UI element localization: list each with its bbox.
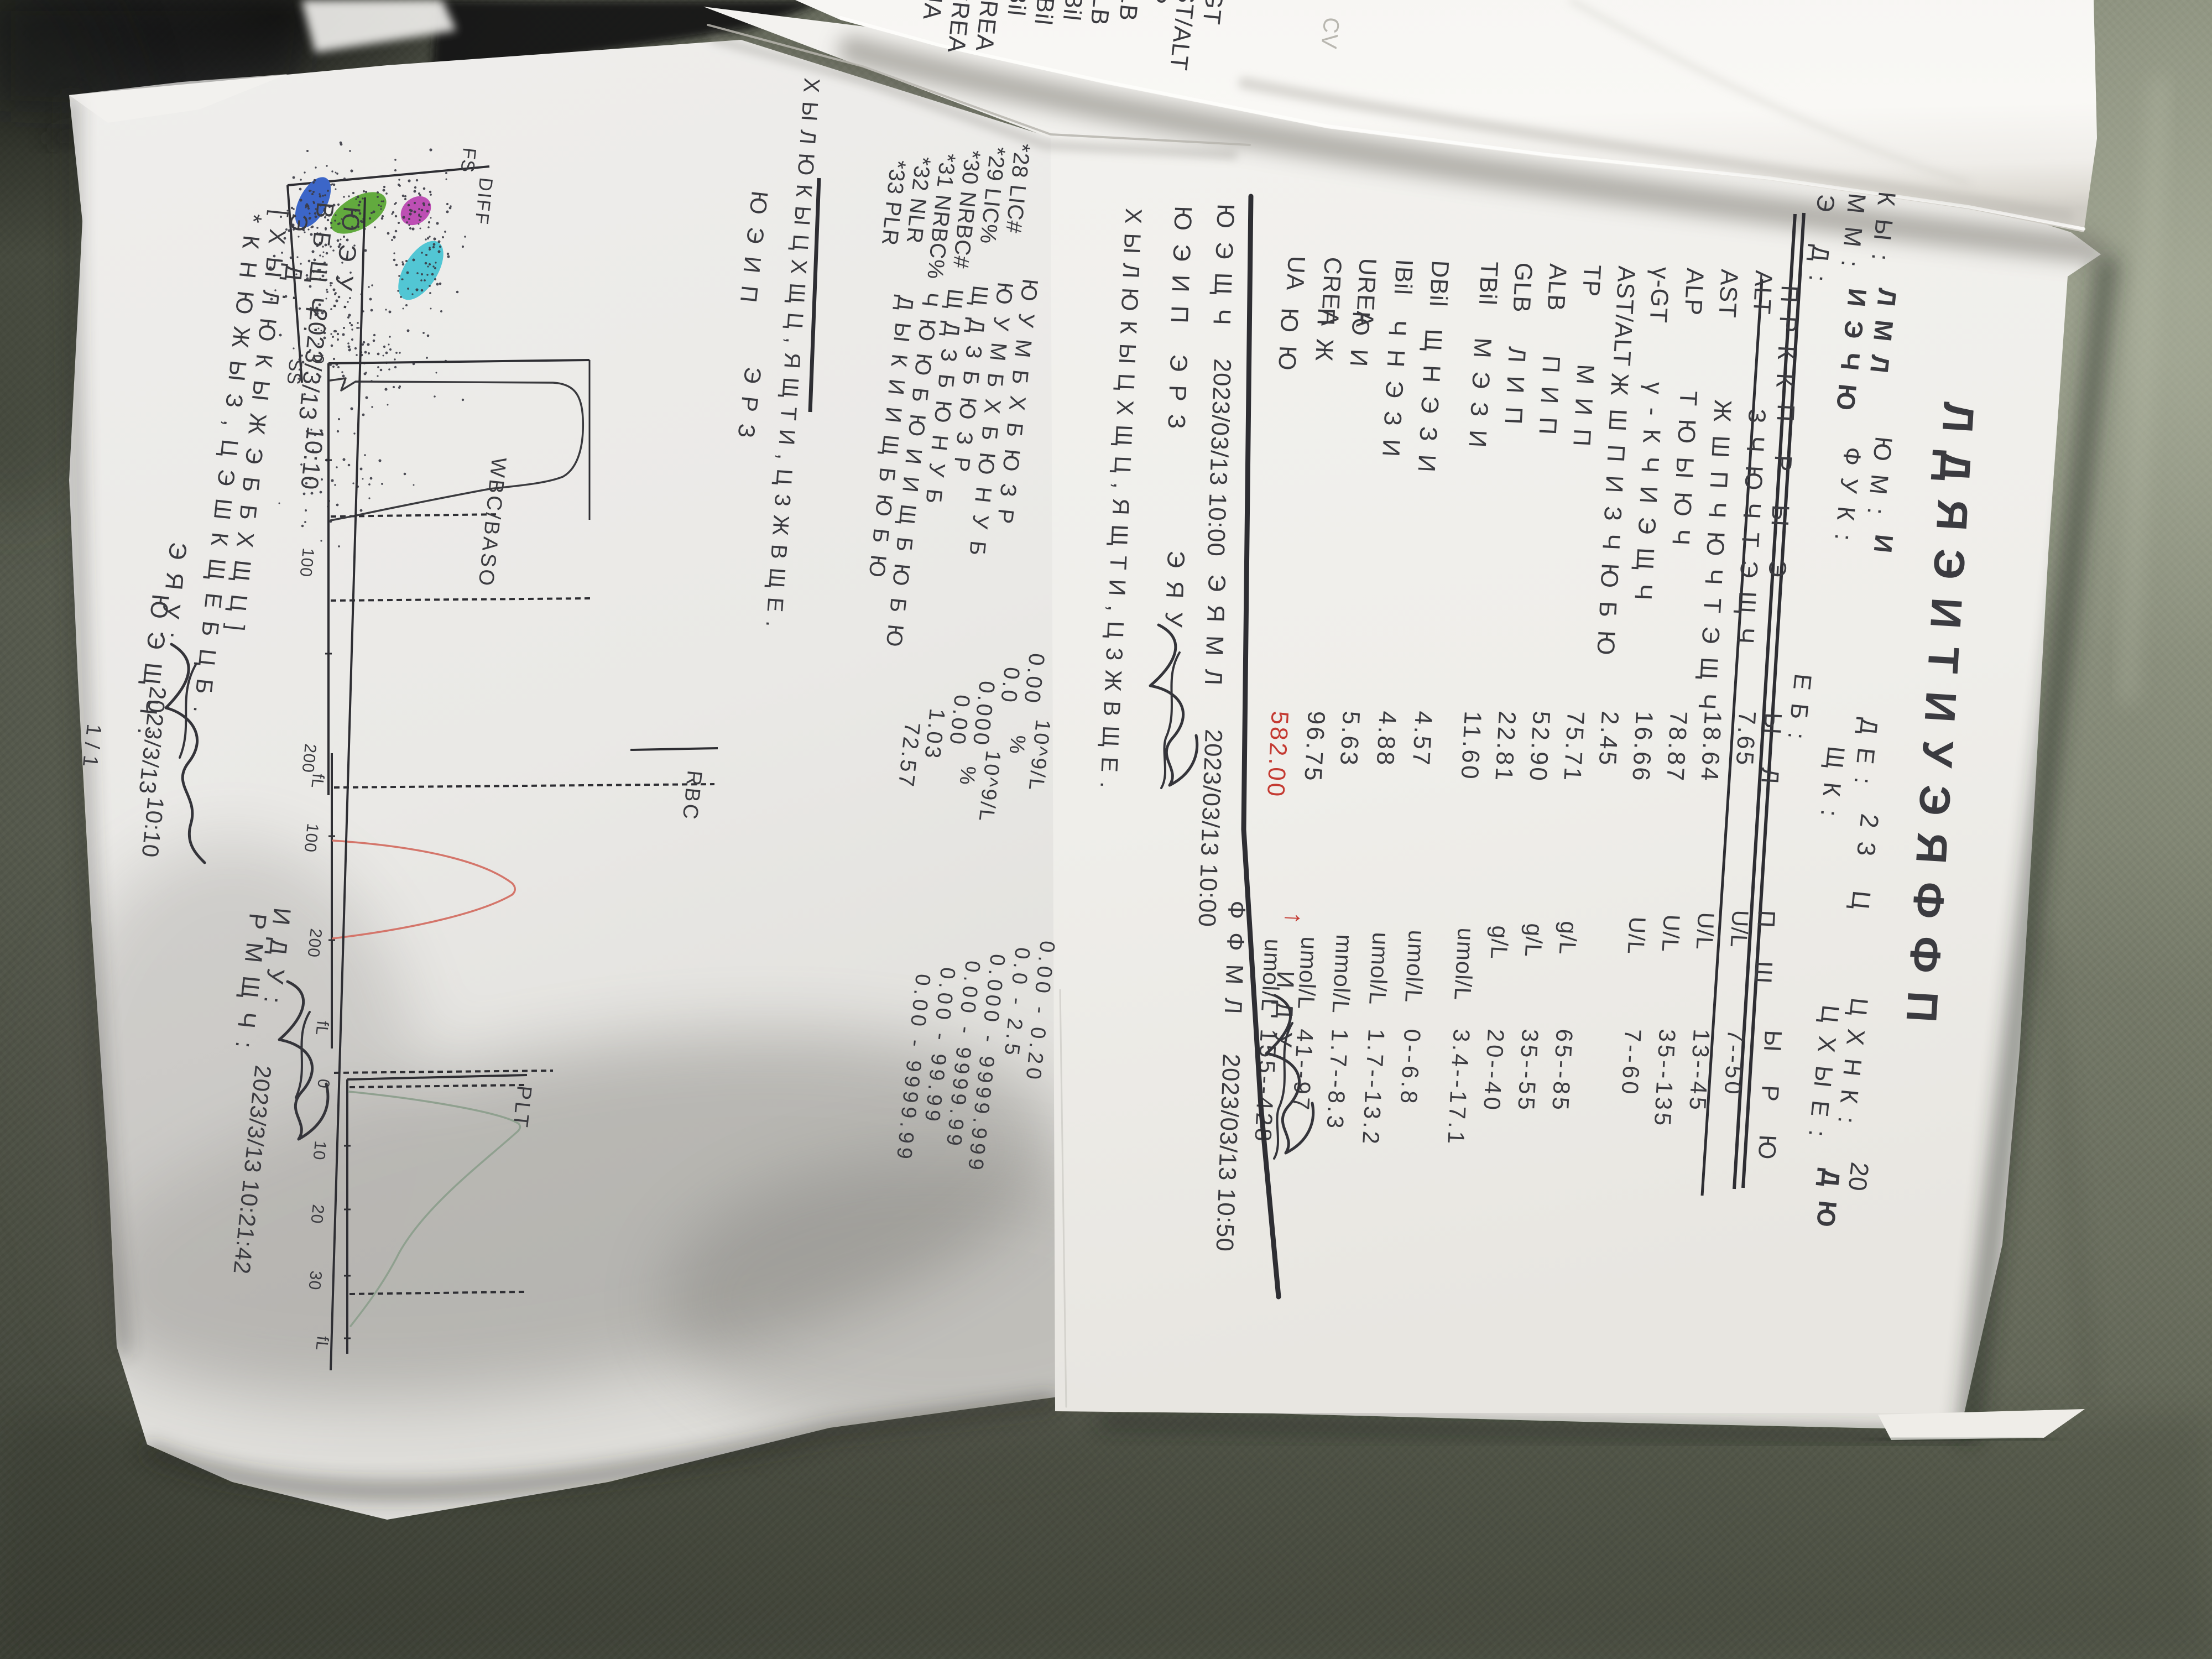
svg-text:20: 20	[1843, 1161, 1874, 1193]
svg-text:4.57: 4.57	[1407, 710, 1437, 768]
svg-text:ЮИ: ЮИ	[1344, 310, 1374, 380]
svg-text:U/L: U/L	[1691, 912, 1719, 951]
svg-text:10: 10	[309, 1140, 330, 1161]
svg-text:ALT: ALT	[1748, 269, 1777, 315]
svg-text:200: 200	[304, 927, 325, 958]
svg-text:200: 200	[298, 743, 319, 774]
svg-text:ПЖ: ПЖ	[1310, 307, 1340, 375]
svg-text:TBil: TBil	[1474, 260, 1503, 306]
svg-text:78.87: 78.87	[1661, 710, 1692, 783]
svg-text:g/L: g/L	[1554, 921, 1582, 956]
svg-text:UA: UA	[917, 0, 948, 22]
svg-text:2.45: 2.45	[1594, 710, 1624, 768]
svg-text:ALB: ALB	[1114, 0, 1146, 23]
svg-text:fL: fL	[312, 1335, 332, 1352]
svg-text:100: 100	[296, 547, 317, 578]
svg-text:ЛИП: ЛИП	[1499, 346, 1531, 438]
svg-text:1.7--8.3: 1.7--8.3	[1322, 1029, 1353, 1132]
svg-text:0.0: 0.0	[996, 666, 1024, 706]
svg-text:%: %	[954, 765, 980, 787]
svg-text:100: 100	[300, 822, 321, 853]
svg-text:g/L: g/L	[1520, 923, 1548, 958]
svg-text:16.66: 16.66	[1627, 710, 1658, 783]
svg-text:IBil: IBil	[1002, 0, 1033, 18]
svg-text:ЮЮ: ЮЮ	[1272, 307, 1303, 384]
svg-text:fL: fL	[312, 1020, 332, 1036]
svg-text:γ-GT: γ-GT	[1645, 266, 1674, 324]
svg-text:ЮЭИП: ЮЭИП	[1165, 206, 1197, 337]
svg-text:5.63: 5.63	[1335, 710, 1365, 768]
svg-text:GLB: GLB	[1086, 0, 1118, 27]
svg-text:U/L: U/L	[1623, 916, 1651, 956]
svg-text:МИП: МИП	[1567, 363, 1599, 460]
svg-text:ALP: ALP	[1679, 267, 1709, 316]
svg-text:0: 0	[314, 1078, 333, 1089]
svg-text:4.88: 4.88	[1371, 710, 1401, 768]
svg-text:65--85: 65--85	[1547, 1029, 1578, 1114]
svg-text:7--50: 7--50	[1720, 1029, 1749, 1098]
svg-text:↑: ↑	[1280, 911, 1309, 926]
svg-text:TP: TP	[1577, 264, 1606, 298]
svg-text:UA: UA	[1281, 255, 1310, 291]
svg-text:ЮЭЩЧ: ЮЭЩЧ	[1208, 204, 1239, 339]
svg-text:96.75: 96.75	[1299, 710, 1330, 783]
svg-text:7.65: 7.65	[1731, 710, 1761, 768]
svg-text:γ-GT: γ-GT	[1197, 0, 1230, 26]
svg-text:20: 20	[307, 1203, 327, 1225]
svg-text:7--60: 7--60	[1617, 1029, 1646, 1098]
svg-text:umol/L: umol/L	[1364, 932, 1394, 1006]
svg-text:umol/L: umol/L	[1400, 930, 1430, 1004]
svg-text:30: 30	[305, 1270, 325, 1291]
svg-text:75.71: 75.71	[1558, 710, 1589, 783]
svg-text:ALB: ALB	[1542, 263, 1572, 312]
svg-text:AST: AST	[1713, 268, 1743, 319]
svg-text:ФФМЛ: ФФМЛ	[1219, 900, 1250, 1028]
svg-text:TBil: TBil	[1058, 0, 1089, 22]
svg-text:0--6.8: 0--6.8	[1396, 1029, 1426, 1107]
svg-text:FS: FS	[456, 147, 480, 174]
svg-text:И: И	[1867, 533, 1899, 568]
svg-text:DBil: DBil	[1425, 259, 1454, 307]
svg-text:ЭЯМЛ: ЭЯМЛ	[1199, 574, 1230, 699]
svg-text:U/L: U/L	[1657, 914, 1685, 953]
svg-text:IBil: IBil	[1389, 258, 1418, 296]
svg-text:AST/ALT: AST/ALT	[1608, 265, 1640, 367]
svg-text:11.60: 11.60	[1455, 710, 1486, 781]
svg-text:%: %	[1004, 734, 1030, 757]
svg-text:mmol/L: mmol/L	[1327, 934, 1357, 1015]
svg-text:13--45: 13--45	[1684, 1029, 1715, 1114]
svg-text:g/L: g/L	[1486, 925, 1514, 961]
svg-text:35--135: 35--135	[1650, 1029, 1681, 1129]
svg-text:DBil: DBil	[1029, 0, 1061, 27]
svg-text:ЭРЗ: ЭРЗ	[1162, 354, 1192, 443]
svg-text:fL: fL	[307, 773, 327, 789]
svg-text:umol/L: umol/L	[1449, 927, 1479, 1001]
svg-text:CV: CV	[1316, 16, 1344, 50]
svg-text:1 / 1: 1 / 1	[78, 723, 106, 769]
svg-text:18.64: 18.64	[1695, 710, 1726, 783]
svg-text:52.90: 52.90	[1524, 710, 1555, 783]
svg-text:582.00: 582.00	[1262, 710, 1293, 799]
svg-text:35--55: 35--55	[1513, 1029, 1543, 1114]
svg-text:GLB: GLB	[1507, 262, 1537, 313]
svg-text:20--40: 20--40	[1479, 1029, 1509, 1114]
svg-text:22.81: 22.81	[1490, 710, 1521, 783]
svg-text:ПИП: ПИП	[1533, 354, 1565, 448]
svg-text:PLT: PLT	[508, 1084, 536, 1130]
svg-text:U/L: U/L	[1725, 910, 1754, 949]
